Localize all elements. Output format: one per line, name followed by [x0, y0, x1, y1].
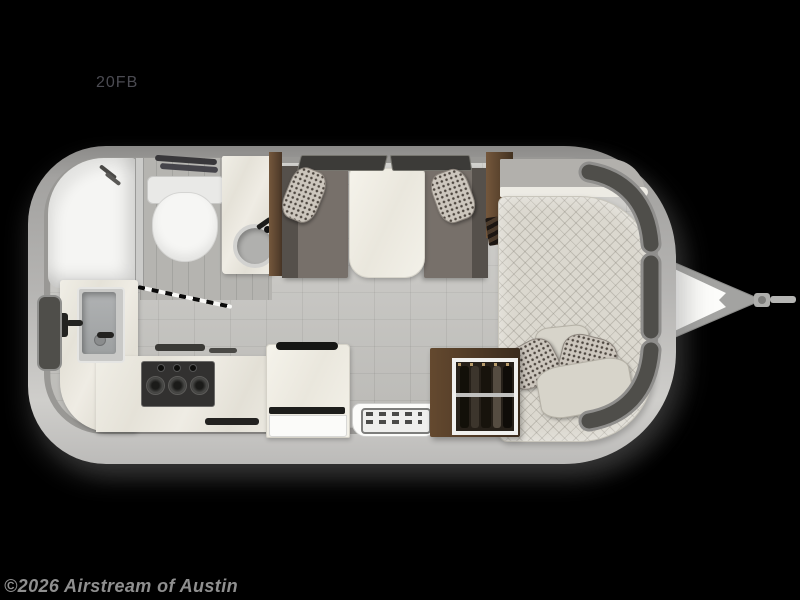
- cooktop-knob: [189, 364, 197, 372]
- closet-rail: [456, 393, 514, 397]
- cooktop-knob: [157, 364, 165, 372]
- cooktop-knob: [173, 364, 181, 372]
- oven-handle: [269, 407, 345, 414]
- side-window-icon: [37, 295, 62, 371]
- model-label: 20FB: [96, 74, 138, 92]
- hanging-clothes: [460, 366, 469, 428]
- hitch-bar: [770, 296, 796, 303]
- shower-glass-panel: [135, 158, 144, 288]
- hanging-clothes: [481, 366, 491, 428]
- hitch-inner: [668, 266, 726, 334]
- toilet-bowl: [152, 192, 218, 262]
- shower-stall: [48, 158, 136, 288]
- refrigerator-handle: [276, 342, 338, 350]
- floorplan-image: 20FB: [0, 0, 800, 600]
- burner-icon: [190, 376, 209, 395]
- drawer-handle: [205, 418, 259, 425]
- kitchen-faucet-arm: [66, 320, 83, 326]
- hanging-clothes: [493, 366, 501, 428]
- hitch-ball: [758, 296, 766, 304]
- oven-door: [269, 415, 347, 437]
- hanging-clothes: [503, 366, 512, 428]
- dinette-table: [349, 168, 425, 278]
- step-tread-line: [366, 420, 422, 424]
- utensil-tray: [209, 348, 237, 353]
- burner-icon: [168, 376, 187, 395]
- hanging-clothes: [471, 366, 479, 428]
- watermark: ©2026 Airstream of Austin: [4, 576, 238, 597]
- step-tread-line: [366, 412, 422, 416]
- bathroom-divider-wall: [269, 152, 282, 276]
- dinette-window-icon: [390, 155, 473, 171]
- utensil-tray: [155, 344, 205, 351]
- drawer-handle: [97, 332, 114, 338]
- burner-icon: [146, 376, 165, 395]
- hitch-coupler: [754, 293, 770, 307]
